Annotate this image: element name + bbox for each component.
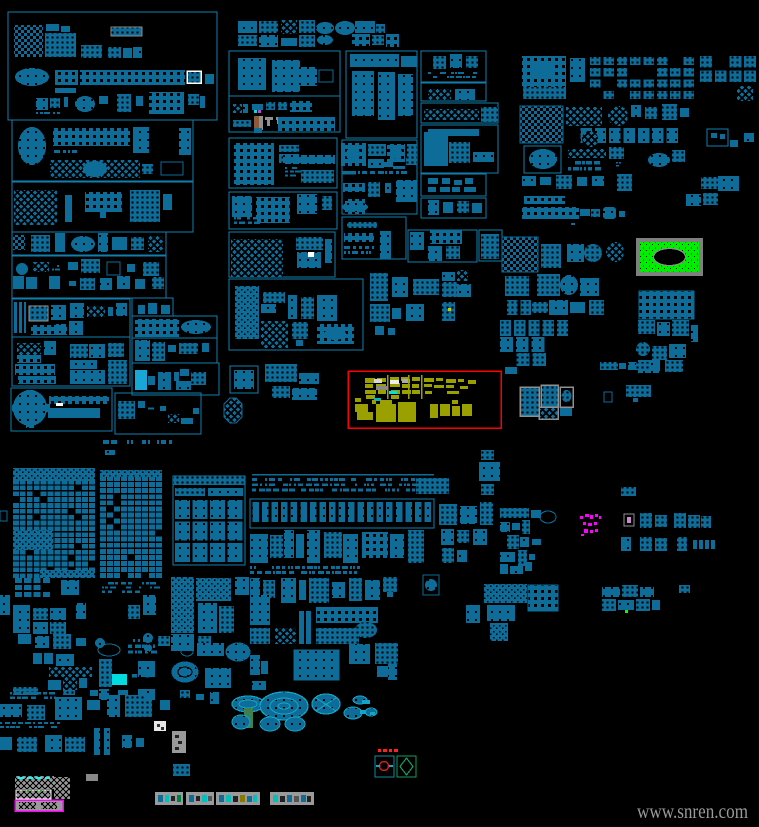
svg-text:www.snren.com: www.snren.com	[637, 802, 748, 823]
